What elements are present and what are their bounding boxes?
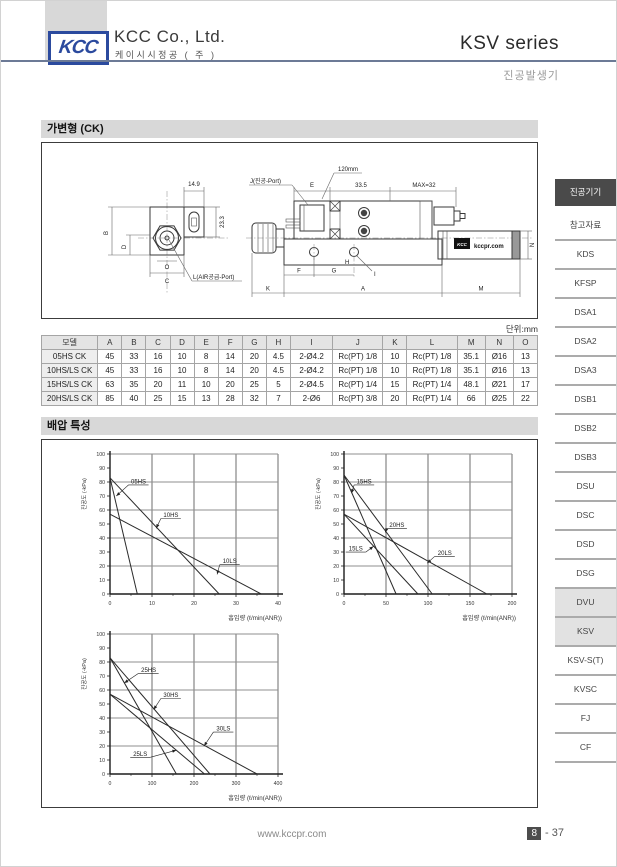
table-header-cell: A	[98, 336, 122, 350]
dim-D: D	[122, 244, 128, 249]
table-row: 10HS/LS CK45331610814204.52-Ø4.2Rc(PT) 1…	[42, 364, 538, 378]
value-cell: 8	[194, 364, 218, 378]
vacuum-port-label: J(진공-Port)	[250, 177, 281, 185]
value-cell: 45	[98, 350, 122, 364]
svg-text:90: 90	[99, 466, 105, 472]
sidebar-item-dsg[interactable]: DSG	[555, 560, 616, 589]
value-cell: 15	[383, 378, 407, 392]
backpressure-chart: 010203040506070809010001020304005HS10HS1…	[78, 446, 316, 624]
table-header-cell: I	[290, 336, 332, 350]
svg-text:25HS: 25HS	[141, 668, 156, 674]
sidebar-item-dvu[interactable]: DVU	[555, 589, 616, 618]
svg-text:흡입량 (ℓ/min(ANR)): 흡입량 (ℓ/min(ANR))	[228, 614, 282, 622]
dim-33-5: 33.5	[355, 183, 367, 189]
sidebar-item-dsa1[interactable]: DSA1	[555, 299, 616, 328]
header-rule	[1, 60, 617, 62]
page-number-rest: - 37	[545, 827, 564, 839]
value-cell: Rc(PT) 1/8	[407, 364, 457, 378]
svg-text:100: 100	[424, 601, 433, 607]
svg-text:0: 0	[102, 772, 105, 778]
value-cell: 13	[194, 392, 218, 406]
value-cell: 10	[194, 378, 218, 392]
table-header-cell: J	[333, 336, 383, 350]
svg-text:30: 30	[99, 730, 105, 736]
svg-text:25LS: 25LS	[133, 752, 147, 758]
table-header-cell: E	[194, 336, 218, 350]
table-row: 20HS/LS CK8540251513283272-Ø6Rc(PT) 3/82…	[42, 392, 538, 406]
svg-text:20: 20	[191, 601, 197, 607]
table-header-cell: G	[242, 336, 266, 350]
dim-max32: MAX=32	[412, 183, 436, 189]
table-header-cell: N	[485, 336, 513, 350]
value-cell: 22	[513, 392, 537, 406]
svg-text:100: 100	[96, 452, 105, 458]
table-header-cell: F	[218, 336, 242, 350]
svg-text:100: 100	[148, 781, 157, 787]
table-row: 05HS CK45331610814204.52-Ø4.2Rc(PT) 1/81…	[42, 350, 538, 364]
table-head: 모델ABCDEFGHIJKLMNO	[42, 336, 538, 350]
svg-text:80: 80	[99, 660, 105, 666]
value-cell: 10	[383, 350, 407, 364]
value-cell: 7	[266, 392, 290, 406]
value-cell: Rc(PT) 1/4	[333, 378, 383, 392]
table-header-cell: C	[146, 336, 170, 350]
value-cell: 17	[513, 378, 537, 392]
value-cell: 2-Ø6	[290, 392, 332, 406]
value-cell: 35.1	[457, 364, 485, 378]
svg-text:05HS: 05HS	[131, 479, 146, 485]
page-number: 8- 37	[527, 827, 564, 840]
value-cell: 35.1	[457, 350, 485, 364]
svg-text:0: 0	[336, 592, 339, 598]
sidebar-item-dsb2[interactable]: DSB2	[555, 415, 616, 444]
dim-B: B	[104, 231, 110, 235]
svg-text:10LS: 10LS	[223, 559, 237, 565]
svg-text:20LS: 20LS	[438, 551, 452, 557]
sidebar-item-dsu[interactable]: DSU	[555, 473, 616, 502]
chart-25hs-30hs-25ls-30ls: 0102030405060708090100010020030040025HS3…	[78, 626, 316, 809]
value-cell: Ø16	[485, 364, 513, 378]
series-title: KSV series	[460, 33, 559, 55]
svg-text:70: 70	[99, 674, 105, 680]
model-cell: 10HS/LS CK	[42, 364, 98, 378]
svg-text:100: 100	[96, 632, 105, 638]
dim-14-9: 14.9	[188, 182, 200, 188]
dim-O: O	[165, 265, 170, 271]
chart-05hs-10hs-10ls: 010203040506070809010001020304005HS10HS1…	[78, 446, 316, 629]
svg-text:10: 10	[99, 578, 105, 584]
sidebar-item-ksv-s-t-[interactable]: KSV-S(T)	[555, 647, 616, 676]
svg-text:30HS: 30HS	[163, 693, 178, 699]
value-cell: 32	[242, 392, 266, 406]
footer-url[interactable]: www.kccpr.com	[1, 829, 583, 840]
table-header-cell: H	[266, 336, 290, 350]
value-cell: Ø21	[485, 378, 513, 392]
svg-text:50: 50	[383, 601, 389, 607]
svg-text:80: 80	[99, 480, 105, 486]
svg-text:30: 30	[99, 550, 105, 556]
catalog-page: KCC KCC Co., Ltd. 케이시시정공 ( 주 ) KSV serie…	[0, 0, 617, 867]
model-cell: 05HS CK	[42, 350, 98, 364]
table-header-cell: D	[170, 336, 194, 350]
svg-text:40: 40	[333, 536, 339, 542]
silencer-brand-text: kccpr.com	[474, 244, 504, 250]
sidebar-item-참고자료[interactable]: 참고자료	[555, 212, 616, 241]
svg-text:0: 0	[109, 781, 112, 787]
sidebar-item-fj[interactable]: FJ	[555, 705, 616, 734]
value-cell: Ø25	[485, 392, 513, 406]
sidebar-item-dsd[interactable]: DSD	[555, 531, 616, 560]
value-cell: 14	[218, 350, 242, 364]
svg-text:40: 40	[275, 601, 281, 607]
model-cell: 15HS/LS CK	[42, 378, 98, 392]
dim-M: M	[479, 287, 484, 293]
backpressure-chart: 010203040506070809010005010015020015HS20…	[312, 446, 550, 624]
value-cell: 16	[146, 350, 170, 364]
technical-drawing: B D 14.9 23.3 O C L(AIR공급-Port)	[42, 143, 537, 318]
svg-text:진공도 (-kPa): 진공도 (-kPa)	[80, 658, 88, 690]
svg-text:0: 0	[109, 601, 112, 607]
svg-text:20: 20	[99, 564, 105, 570]
svg-text:80: 80	[333, 480, 339, 486]
svg-text:20HS: 20HS	[389, 523, 404, 529]
value-cell: Rc(PT) 1/8	[333, 364, 383, 378]
svg-text:15HS: 15HS	[357, 479, 372, 485]
product-type: 진공발생기	[503, 67, 559, 83]
value-cell: Rc(PT) 3/8	[333, 392, 383, 406]
value-cell: 63	[98, 378, 122, 392]
svg-text:0: 0	[343, 601, 346, 607]
sidebar-item-dsa3[interactable]: DSA3	[555, 357, 616, 386]
svg-text:20: 20	[99, 744, 105, 750]
value-cell: 33	[122, 364, 146, 378]
svg-text:10: 10	[99, 758, 105, 764]
value-cell: 66	[457, 392, 485, 406]
sidebar-item-dsb1[interactable]: DSB1	[555, 386, 616, 415]
value-cell: 20	[146, 378, 170, 392]
silencer-brand-logo: KCC	[457, 242, 467, 247]
dimension-table: 모델ABCDEFGHIJKLMNO 05HS CK45331610814204.…	[41, 335, 538, 406]
sidebar-item-kvsc[interactable]: KVSC	[555, 676, 616, 705]
svg-text:70: 70	[99, 494, 105, 500]
table-body: 05HS CK45331610814204.52-Ø4.2Rc(PT) 1/81…	[42, 350, 538, 406]
value-cell: 11	[170, 378, 194, 392]
value-cell: 13	[513, 350, 537, 364]
value-cell: 20	[242, 350, 266, 364]
dim-E: E	[310, 183, 314, 189]
dim-23-3: 23.3	[220, 216, 226, 228]
value-cell: 48.1	[457, 378, 485, 392]
value-cell: 4.5	[266, 350, 290, 364]
value-cell: 20	[242, 364, 266, 378]
value-cell: Rc(PT) 1/8	[333, 350, 383, 364]
dim-F: F	[297, 269, 301, 275]
dim-I: I	[374, 272, 376, 278]
value-cell: 2-Ø4.5	[290, 378, 332, 392]
svg-text:200: 200	[190, 781, 199, 787]
value-cell: 20	[218, 378, 242, 392]
svg-text:400: 400	[274, 781, 283, 787]
section-title-backpressure: 배압 특성	[41, 417, 538, 435]
value-cell: Ø16	[485, 350, 513, 364]
table-header-cell: K	[383, 336, 407, 350]
units-label: 단위:mm	[41, 323, 538, 335]
value-cell: 85	[98, 392, 122, 406]
svg-text:70: 70	[333, 494, 339, 500]
svg-text:10: 10	[149, 601, 155, 607]
svg-text:10HS: 10HS	[163, 513, 178, 519]
model-cell: 20HS/LS CK	[42, 392, 98, 406]
svg-text:300: 300	[232, 781, 241, 787]
sidebar-item-dsc[interactable]: DSC	[555, 502, 616, 531]
sidebar-item-cf[interactable]: CF	[555, 734, 616, 763]
sidebar-item-dsb3[interactable]: DSB3	[555, 444, 616, 473]
table-header-cell: M	[457, 336, 485, 350]
value-cell: Rc(PT) 1/4	[407, 378, 457, 392]
svg-text:0: 0	[102, 592, 105, 598]
value-cell: 25	[242, 378, 266, 392]
table-header-cell: 모델	[42, 336, 98, 350]
svg-text:흡입량 (ℓ/min(ANR)): 흡입량 (ℓ/min(ANR))	[228, 794, 282, 802]
value-cell: 15	[170, 392, 194, 406]
technical-drawing-box: B D 14.9 23.3 O C L(AIR공급-Port)	[41, 142, 538, 319]
value-cell: 2-Ø4.2	[290, 350, 332, 364]
value-cell: 28	[218, 392, 242, 406]
value-cell: Rc(PT) 1/4	[407, 392, 457, 406]
svg-text:진공도 (-kPa): 진공도 (-kPa)	[80, 478, 88, 510]
sidebar-item-kds[interactable]: KDS	[555, 241, 616, 270]
section-title-variable-type: 가변형 (CK)	[41, 120, 538, 138]
sidebar-item-진공기기[interactable]: 진공기기	[555, 179, 616, 206]
value-cell: 8	[194, 350, 218, 364]
svg-text:10: 10	[333, 578, 339, 584]
svg-text:15LS: 15LS	[349, 547, 363, 553]
dim-N: N	[530, 243, 536, 247]
value-cell: 20	[383, 392, 407, 406]
svg-text:30: 30	[233, 601, 239, 607]
air-port-label: L(AIR공급-Port)	[193, 274, 234, 281]
svg-text:40: 40	[99, 716, 105, 722]
backpressure-chart: 0102030405060708090100010020030040025HS3…	[78, 626, 316, 804]
svg-text:50: 50	[333, 522, 339, 528]
value-cell: 14	[218, 364, 242, 378]
svg-text:흡입량 (ℓ/min(ANR)): 흡입량 (ℓ/min(ANR))	[462, 614, 516, 622]
svg-text:60: 60	[333, 508, 339, 514]
value-cell: 4.5	[266, 364, 290, 378]
dim-G: G	[332, 269, 337, 275]
svg-text:150: 150	[466, 601, 475, 607]
table-header-row: 모델ABCDEFGHIJKLMNO	[42, 336, 538, 350]
value-cell: Rc(PT) 1/8	[407, 350, 457, 364]
value-cell: 25	[146, 392, 170, 406]
value-cell: 45	[98, 364, 122, 378]
table-header-cell: B	[122, 336, 146, 350]
dim-H: H	[345, 260, 349, 266]
value-cell: 10	[383, 364, 407, 378]
value-cell: 5	[266, 378, 290, 392]
dim-C: C	[165, 279, 170, 285]
dim-K: K	[266, 287, 270, 293]
svg-text:30LS: 30LS	[216, 727, 230, 733]
svg-text:90: 90	[333, 466, 339, 472]
company-name: KCC Co., Ltd.	[114, 27, 225, 47]
sidebar: 진공기기참고자료KDSKFSPDSA1DSA2DSA3DSB1DSB2DSB3D…	[555, 179, 616, 763]
svg-text:40: 40	[99, 536, 105, 542]
value-cell: 10	[170, 364, 194, 378]
sidebar-item-ksv[interactable]: KSV	[555, 618, 616, 647]
svg-text:200: 200	[508, 601, 517, 607]
sidebar-item-kfsp[interactable]: KFSP	[555, 270, 616, 299]
svg-text:60: 60	[99, 688, 105, 694]
table-header-cell: L	[407, 336, 457, 350]
page-number-box: 8	[527, 827, 541, 840]
svg-text:100: 100	[330, 452, 339, 458]
value-cell: 33	[122, 350, 146, 364]
value-cell: 13	[513, 364, 537, 378]
value-cell: 40	[122, 392, 146, 406]
chart-15hs-20hs-15ls-20ls: 010203040506070809010005010015020015HS20…	[312, 446, 550, 629]
callout-120mm: 120mm	[338, 167, 358, 173]
sidebar-item-dsa2[interactable]: DSA2	[555, 328, 616, 357]
svg-text:20: 20	[333, 564, 339, 570]
kcc-logo-text: KCC	[58, 37, 99, 59]
table-row: 15HS/LS CK6335201110202552-Ø4.5Rc(PT) 1/…	[42, 378, 538, 392]
svg-text:진공도 (-kPa): 진공도 (-kPa)	[314, 478, 322, 510]
value-cell: 2-Ø4.2	[290, 364, 332, 378]
value-cell: 16	[146, 364, 170, 378]
svg-text:60: 60	[99, 508, 105, 514]
backpressure-charts-box: 010203040506070809010001020304005HS10HS1…	[41, 439, 538, 808]
svg-text:30: 30	[333, 550, 339, 556]
table-header-cell: O	[513, 336, 537, 350]
svg-text:50: 50	[99, 702, 105, 708]
svg-text:50: 50	[99, 522, 105, 528]
dim-A: A	[361, 287, 365, 293]
value-cell: 10	[170, 350, 194, 364]
svg-text:90: 90	[99, 646, 105, 652]
value-cell: 35	[122, 378, 146, 392]
